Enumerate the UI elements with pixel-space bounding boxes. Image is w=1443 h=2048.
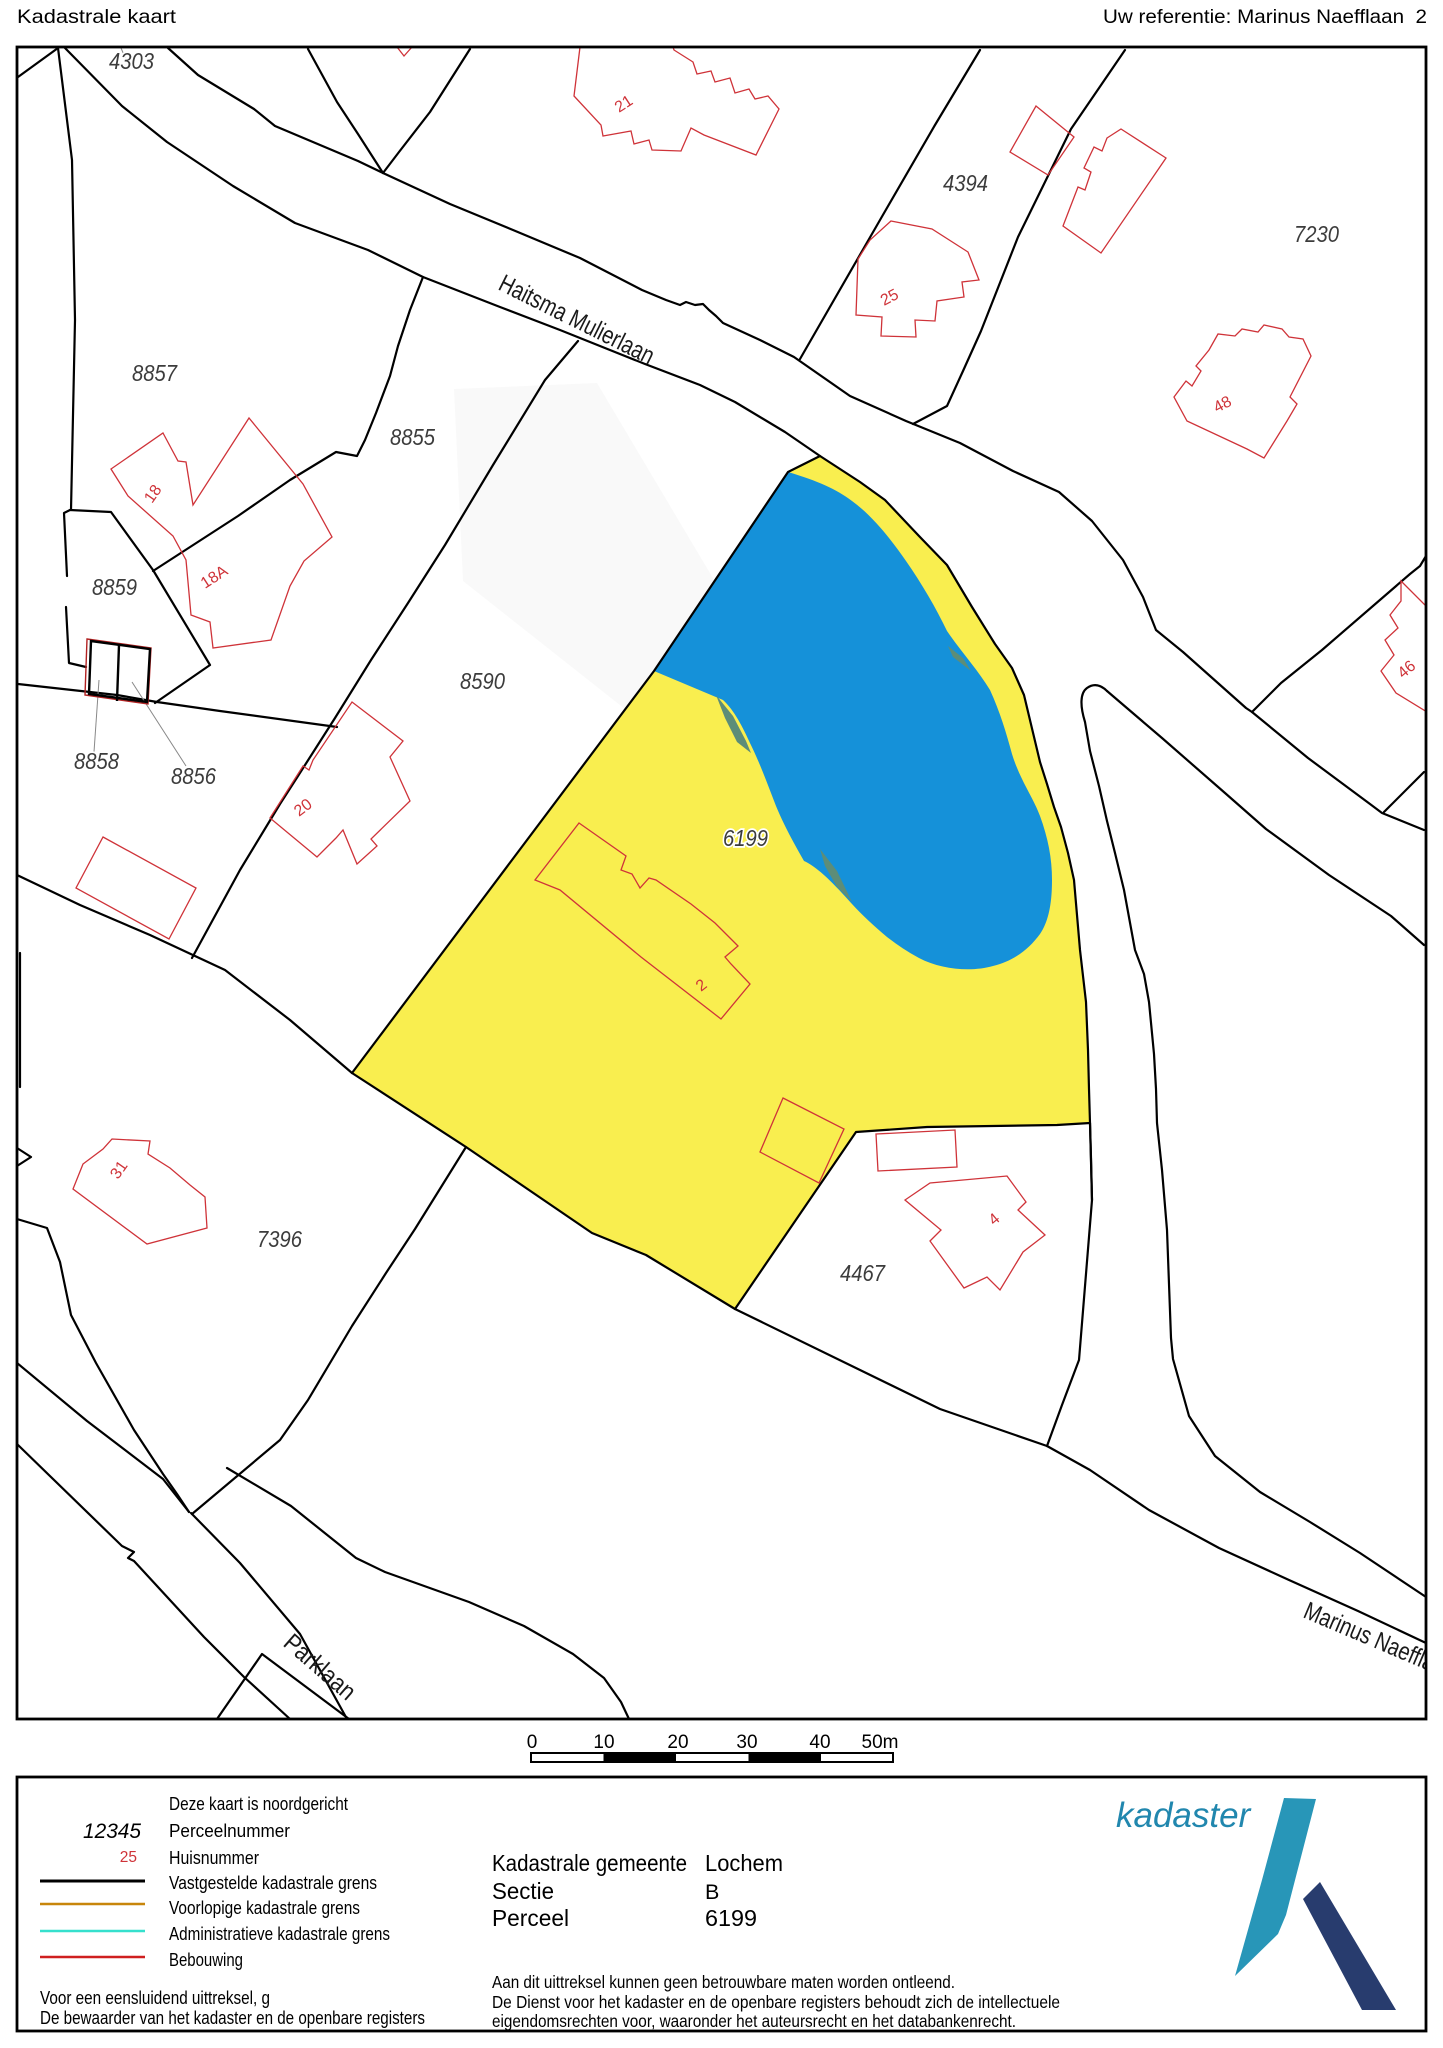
svg-text:18A: 18A <box>198 562 231 592</box>
svg-text:50m: 50m <box>862 1732 899 1753</box>
svg-text:40: 40 <box>809 1732 830 1753</box>
svg-text:7230: 7230 <box>1294 221 1339 247</box>
svg-text:4394: 4394 <box>943 170 988 196</box>
svg-text:Kadastrale kaart: Kadastrale kaart <box>17 6 177 28</box>
svg-text:8855: 8855 <box>390 424 435 450</box>
svg-text:Sectie: Sectie <box>492 1878 554 1904</box>
svg-text:4303: 4303 <box>109 48 154 74</box>
svg-text:Bebouwing: Bebouwing <box>169 1949 243 1970</box>
svg-text:8858: 8858 <box>74 748 119 774</box>
svg-text:Voor een eensluidend uittrekse: Voor een eensluidend uittreksel, g <box>40 1987 270 2008</box>
svg-text:Kadastrale gemeente: Kadastrale gemeente <box>492 1850 687 1876</box>
svg-text:Uw referentie: Marinus Naeffla: Uw referentie: Marinus Naefflaan 2 <box>1103 6 1427 28</box>
svg-text:12345: 12345 <box>83 1820 141 1843</box>
svg-text:6199: 6199 <box>723 825 768 851</box>
svg-text:10: 10 <box>593 1732 614 1753</box>
svg-text:Voorlopige kadastrale grens: Voorlopige kadastrale grens <box>169 1897 360 1918</box>
svg-text:6199: 6199 <box>705 1905 757 1931</box>
svg-text:Haitsma Mulierlaan: Haitsma Mulierlaan <box>494 269 659 370</box>
svg-text:Vastgestelde kadastrale grens: Vastgestelde kadastrale grens <box>169 1872 377 1893</box>
svg-text:Huisnummer: Huisnummer <box>169 1847 259 1868</box>
svg-text:18: 18 <box>141 482 165 506</box>
svg-text:8859: 8859 <box>92 574 137 600</box>
svg-text:Perceelnummer: Perceelnummer <box>169 1820 290 1841</box>
svg-text:Parklaan: Parklaan <box>278 1628 361 1706</box>
svg-text:30: 30 <box>736 1732 757 1753</box>
svg-text:De Dienst voor het kadaster en: De Dienst voor het kadaster en de openba… <box>492 1992 1060 2012</box>
svg-text:8590: 8590 <box>460 668 505 694</box>
svg-text:7396: 7396 <box>257 1226 302 1252</box>
svg-text:Administratieve kadastrale gre: Administratieve kadastrale grens <box>169 1923 390 1944</box>
svg-text:0: 0 <box>527 1732 538 1753</box>
svg-text:B: B <box>705 1880 719 1904</box>
svg-text:20: 20 <box>667 1732 688 1753</box>
svg-text:Lochem: Lochem <box>705 1850 783 1876</box>
svg-text:31: 31 <box>107 1158 131 1182</box>
svg-text:46: 46 <box>1395 658 1420 683</box>
svg-text:20: 20 <box>291 796 316 820</box>
svg-text:8857: 8857 <box>132 360 178 386</box>
svg-text:Perceel: Perceel <box>492 1905 569 1931</box>
svg-text:48: 48 <box>1211 393 1235 416</box>
svg-text:Deze kaart is noordgericht: Deze kaart is noordgericht <box>169 1793 348 1814</box>
svg-text:25: 25 <box>878 286 902 309</box>
svg-text:8856: 8856 <box>171 763 216 789</box>
svg-text:eigendomsrechten voor, waarond: eigendomsrechten voor, waaronder het aut… <box>492 2011 1016 2031</box>
svg-text:kadaster: kadaster <box>1116 1796 1252 1835</box>
svg-text:4467: 4467 <box>840 1260 886 1286</box>
svg-text:Aan dit uittreksel kunnen geen: Aan dit uittreksel kunnen geen betrouwba… <box>492 1972 955 1992</box>
svg-text:21: 21 <box>612 92 636 116</box>
svg-text:4: 4 <box>986 1210 1004 1229</box>
svg-text:25: 25 <box>120 1849 137 1866</box>
svg-text:De bewaarder van het kadaster: De bewaarder van het kadaster en de open… <box>40 2007 425 2028</box>
